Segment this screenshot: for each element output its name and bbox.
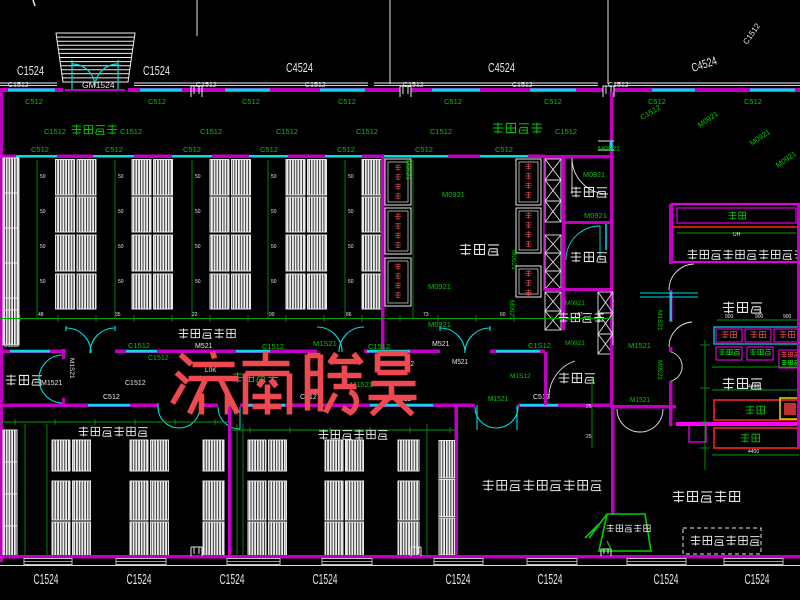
svg-text:M0921: M0921 — [656, 360, 663, 380]
svg-text:M1521: M1521 — [628, 341, 651, 350]
svg-text:35: 35 — [115, 312, 121, 318]
svg-text:C1512: C1512 — [368, 342, 390, 351]
svg-text:47: 47 — [577, 312, 583, 318]
svg-text:50: 50 — [40, 174, 46, 180]
svg-text:M0921: M0921 — [565, 340, 585, 347]
svg-text:50: 50 — [348, 244, 354, 250]
svg-text:86: 86 — [346, 312, 352, 318]
svg-text:25: 25 — [586, 434, 592, 440]
svg-text:50: 50 — [195, 244, 201, 250]
svg-text:C1S12: C1S12 — [528, 341, 551, 350]
svg-text:50: 50 — [118, 209, 124, 215]
svg-text:C512: C512 — [31, 145, 49, 154]
svg-text:M1521: M1521 — [41, 380, 63, 387]
svg-text:M0921: M0921 — [583, 170, 605, 179]
svg-text:C1512: C1512 — [196, 82, 217, 89]
svg-text:C1524: C1524 — [17, 63, 44, 78]
svg-text:C512: C512 — [148, 97, 166, 106]
svg-text:900: 900 — [755, 314, 764, 320]
svg-text:C512: C512 — [260, 145, 278, 154]
svg-text:C1512: C1512 — [128, 341, 150, 350]
svg-text:C1512: C1512 — [276, 127, 298, 136]
svg-text:C1524: C1524 — [654, 571, 679, 588]
svg-text:M0921: M0921 — [565, 300, 585, 307]
svg-text:50: 50 — [271, 174, 277, 180]
svg-text:22: 22 — [192, 312, 198, 318]
svg-text:C512: C512 — [105, 145, 123, 154]
svg-text:C1512: C1512 — [125, 380, 146, 387]
svg-text:M521: M521 — [432, 341, 450, 348]
svg-text:C512: C512 — [242, 97, 260, 106]
svg-text:C512: C512 — [415, 145, 433, 154]
svg-text:C1512: C1512 — [200, 127, 222, 136]
svg-text:C512: C512 — [744, 97, 762, 106]
svg-text:M1S21: M1S21 — [313, 339, 337, 348]
svg-text:50: 50 — [40, 244, 46, 250]
svg-text:C1524: C1524 — [446, 571, 471, 588]
svg-text:4400: 4400 — [748, 384, 759, 390]
svg-text:73: 73 — [423, 312, 429, 318]
svg-text:M1S21: M1S21 — [68, 358, 75, 379]
svg-text:C1512: C1512 — [44, 127, 66, 136]
svg-text:48: 48 — [38, 312, 44, 318]
svg-text:50: 50 — [348, 279, 354, 285]
svg-text:M1S21: M1S21 — [656, 310, 663, 331]
svg-text:C1524: C1524 — [745, 571, 770, 588]
svg-text:C1512: C1512 — [608, 82, 629, 89]
svg-text:C1512: C1512 — [512, 82, 533, 89]
svg-text:C1524: C1524 — [127, 571, 152, 588]
svg-text:C512: C512 — [103, 394, 120, 401]
svg-text:C1512: C1512 — [148, 355, 169, 362]
svg-text:50: 50 — [195, 279, 201, 285]
svg-text:C512: C512 — [533, 394, 550, 401]
svg-text:C512: C512 — [25, 97, 43, 106]
svg-text:M1S12: M1S12 — [510, 373, 531, 380]
svg-text:50: 50 — [271, 244, 277, 250]
svg-text:60: 60 — [500, 312, 506, 318]
svg-text:M0921: M0921 — [584, 211, 607, 220]
svg-text:50: 50 — [271, 209, 277, 215]
svg-text:C1512: C1512 — [120, 127, 142, 136]
svg-text:L0K: L0K — [205, 367, 217, 374]
svg-text:C1524: C1524 — [34, 571, 59, 588]
svg-text:C1512: C1512 — [430, 127, 452, 136]
svg-text:M1521: M1521 — [630, 395, 650, 404]
svg-text:50: 50 — [40, 279, 46, 285]
svg-text:900: 900 — [725, 314, 734, 320]
svg-text:C1512: C1512 — [8, 82, 29, 89]
svg-text:C512: C512 — [337, 145, 355, 154]
svg-text:50: 50 — [271, 279, 277, 285]
svg-text:C1524: C1524 — [538, 571, 563, 588]
svg-text:C1512: C1512 — [555, 127, 577, 136]
svg-text:900: 900 — [783, 314, 792, 320]
svg-text:50: 50 — [195, 174, 201, 180]
svg-text:M521: M521 — [195, 343, 213, 350]
svg-text:4400: 4400 — [748, 449, 759, 455]
svg-text:C1512: C1512 — [403, 82, 424, 89]
svg-text:C1512: C1512 — [4, 342, 19, 349]
svg-text:C1524: C1524 — [143, 63, 170, 78]
svg-text:C512: C512 — [495, 145, 513, 154]
svg-text:50: 50 — [348, 209, 354, 215]
svg-text:25: 25 — [586, 404, 592, 410]
svg-text:C512: C512 — [444, 97, 462, 106]
svg-text:C1512: C1512 — [262, 342, 284, 351]
svg-text:M0921: M0921 — [598, 146, 620, 153]
svg-text:C4524: C4524 — [488, 60, 515, 75]
svg-text:99: 99 — [269, 312, 275, 318]
svg-text:M1521: M1521 — [488, 394, 508, 403]
svg-text:C4524: C4524 — [286, 60, 313, 75]
svg-text:50: 50 — [195, 209, 201, 215]
svg-text:M0921: M0921 — [428, 282, 451, 291]
svg-text:C1512: C1512 — [305, 82, 326, 89]
svg-text:M0921: M0921 — [404, 160, 411, 180]
svg-text:M0921: M0921 — [510, 250, 517, 270]
svg-text:C512: C512 — [183, 145, 201, 154]
svg-text:50: 50 — [118, 279, 124, 285]
svg-text:50: 50 — [118, 244, 124, 250]
svg-text:C1524: C1524 — [220, 571, 245, 588]
svg-text:C512: C512 — [338, 97, 356, 106]
svg-text:M521: M521 — [452, 359, 468, 366]
svg-text:50: 50 — [40, 209, 46, 215]
svg-text:C1512: C1512 — [356, 127, 378, 136]
svg-text:50: 50 — [118, 174, 124, 180]
svg-text:50: 50 — [348, 174, 354, 180]
svg-text:C512: C512 — [544, 97, 562, 106]
svg-text:M0921: M0921 — [442, 190, 465, 199]
svg-text:C1524: C1524 — [313, 571, 338, 588]
svg-text:GM1524: GM1524 — [82, 80, 115, 90]
svg-text:UH: UH — [733, 232, 741, 238]
